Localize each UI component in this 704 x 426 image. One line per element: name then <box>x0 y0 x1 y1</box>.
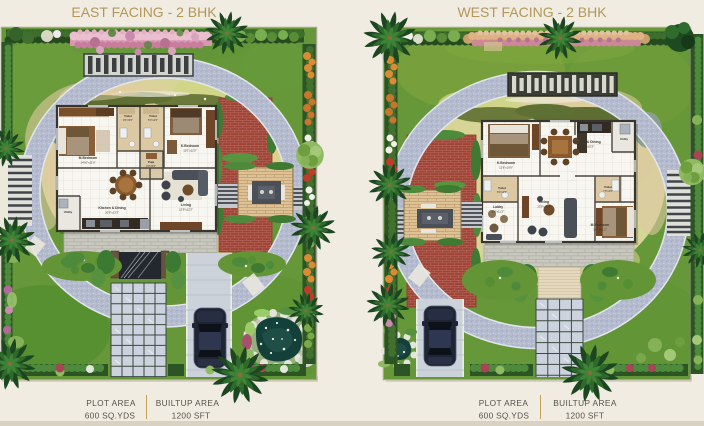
svg-text:13'9"x11'3": 13'9"x11'3" <box>537 205 551 209</box>
svg-text:EAST FACING - 2 BHK: EAST FACING - 2 BHK <box>71 4 217 20</box>
svg-text:20'9"x13'3": 20'9"x13'3" <box>105 211 119 215</box>
svg-text:14'10"x11'0": 14'10"x11'0" <box>80 161 95 165</box>
svg-text:Toilet: Toilet <box>604 185 612 189</box>
svg-text:12'9"x12'3": 12'9"x12'3" <box>179 208 193 212</box>
svg-text:Toilet: Toilet <box>498 186 506 190</box>
svg-text:BUILTUP AREA: BUILTUP AREA <box>156 398 220 408</box>
svg-text:Kitchen & Dining: Kitchen & Dining <box>573 140 600 144</box>
svg-text:PLOT AREA: PLOT AREA <box>479 398 529 408</box>
svg-text:Toilet: Toilet <box>149 114 157 118</box>
svg-text:7'6"x4'6": 7'6"x4'6" <box>603 189 613 193</box>
svg-text:WEST FACING - 2 BHK: WEST FACING - 2 BHK <box>457 4 607 20</box>
svg-text:18'2"x10'3": 18'2"x10'3" <box>580 145 594 149</box>
svg-text:Kitchen & Dining: Kitchen & Dining <box>98 206 125 210</box>
svg-text:4'0"x5'6": 4'0"x5'6" <box>146 164 156 168</box>
svg-text:1200 SFT: 1200 SFT <box>566 411 605 421</box>
svg-text:M.Bedroom: M.Bedroom <box>591 223 610 227</box>
svg-text:Utility: Utility <box>64 210 73 214</box>
svg-text:8'0"x4'6": 8'0"x4'6" <box>497 190 507 194</box>
svg-text:Utility: Utility <box>620 137 628 141</box>
svg-text:Toilet: Toilet <box>124 114 132 118</box>
svg-text:M.Bedroom: M.Bedroom <box>79 156 98 160</box>
svg-text:12'7"x11'1": 12'7"x11'1" <box>593 228 607 232</box>
svg-text:12'6"x10'0": 12'6"x10'0" <box>499 166 513 170</box>
svg-text:600 SQ.YDS: 600 SQ.YDS <box>85 411 136 421</box>
svg-text:BUILTUP AREA: BUILTUP AREA <box>553 398 617 408</box>
svg-text:6'6"x11'2": 6'6"x11'2" <box>492 210 504 214</box>
svg-text:600 SQ.YDS: 600 SQ.YDS <box>479 411 530 421</box>
svg-text:Puja: Puja <box>148 160 155 164</box>
svg-text:K.Bedroom: K.Bedroom <box>181 144 199 148</box>
svg-text:5'0"x4'6": 5'0"x4'6" <box>148 118 158 122</box>
svg-text:Lobby: Lobby <box>493 205 503 209</box>
svg-text:11'0"x12'0": 11'0"x12'0" <box>183 149 197 153</box>
svg-text:Living: Living <box>181 203 191 207</box>
svg-text:9'6"x5'0": 9'6"x5'0" <box>123 118 133 122</box>
svg-text:PLOT AREA: PLOT AREA <box>86 398 136 408</box>
svg-text:Living: Living <box>539 200 549 204</box>
svg-text:K.Bedroom: K.Bedroom <box>497 161 515 165</box>
svg-text:1200 SFT: 1200 SFT <box>172 411 211 421</box>
